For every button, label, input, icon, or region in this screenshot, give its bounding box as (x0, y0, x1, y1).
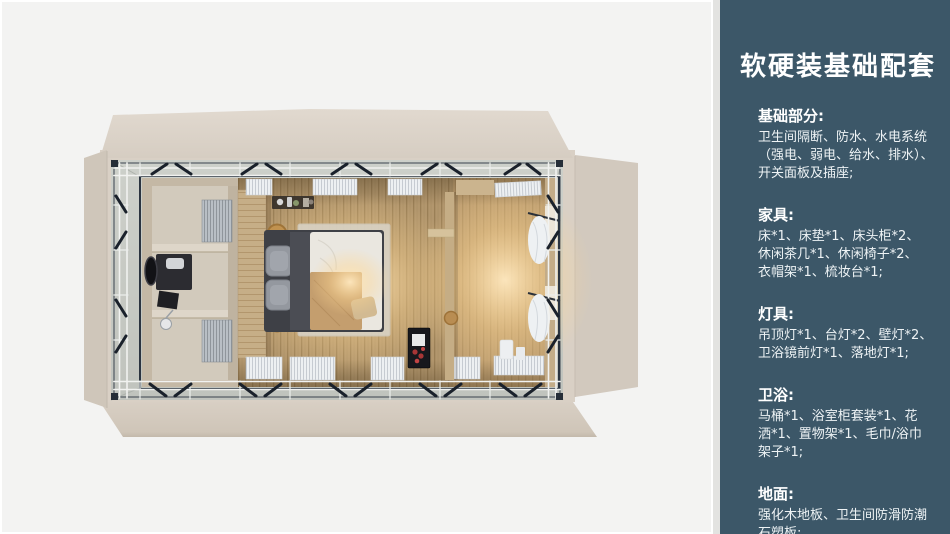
towel-rack (202, 320, 232, 362)
section-line: 吊顶灯*1、台灯*2、壁灯*2、 (758, 327, 936, 345)
shower-head (161, 319, 172, 330)
wall-shelf (272, 196, 314, 209)
section-heading: 地面: (758, 483, 936, 504)
section-line: 卫浴镜前灯*1、落地灯*1; (758, 345, 936, 363)
section-line: 休闲茶几*1、休闲椅子*2、 (758, 246, 936, 264)
section-line: 卫生间隔断、防水、水电系统 (758, 129, 936, 147)
bottom-wall-flap (100, 402, 597, 437)
section-line: 衣帽架*1、梳妆台*1; (758, 264, 936, 282)
mirror (145, 257, 157, 285)
wardrobe (456, 180, 494, 195)
floorplan-canvas (0, 0, 713, 534)
sink (166, 258, 184, 269)
top-wall-flap (100, 109, 573, 158)
section-heading: 家具: (758, 204, 936, 225)
section-bathroom: 卫浴: 马桶*1、浴室柜套装*1、花 洒*1、置物架*1、毛巾/浴巾 架子*1; (758, 384, 936, 462)
panel-title: 软硬装基础配套 (740, 46, 936, 83)
bed-area (264, 224, 390, 336)
section-line: 马桶*1、浴室柜套装*1、花 (758, 408, 936, 426)
section-line: 开关面板及插座; (758, 165, 936, 183)
section-heading: 基础部分: (758, 105, 936, 126)
section-line: 洒*1、置物架*1、毛巾/浴巾 (758, 426, 936, 444)
bathroom (142, 178, 238, 387)
section-heading: 卫浴: (758, 384, 936, 405)
stool (157, 291, 179, 310)
section-line: 石塑板; (758, 525, 936, 534)
section-basics: 基础部分: 卫生间隔断、防水、水电系统 （强电、弱电、给水、排水）、 开关面板及… (758, 105, 936, 183)
partition-wall (445, 192, 454, 380)
lamp-glow (310, 248, 390, 316)
slide: { "panel": { "title": "软硬装基础配套", "bg_col… (0, 0, 950, 534)
info-panel: 软硬装基础配套 基础部分: 卫生间隔断、防水、水电系统 （强电、弱电、给水、排水… (720, 0, 950, 534)
section-lighting: 灯具: 吊顶灯*1、台灯*2、壁灯*2、 卫浴镜前灯*1、落地灯*1; (758, 303, 936, 363)
section-line: 强化木地板、卫生间防滑防潮 (758, 507, 936, 525)
shelf (428, 229, 454, 237)
floorplan-render (0, 0, 713, 534)
section-line: （强电、弱电、给水、排水）、 (758, 147, 936, 165)
section-heading: 灯具: (758, 303, 936, 324)
basket (445, 312, 458, 325)
section-line: 床*1、床垫*1、床头柜*2、 (758, 228, 936, 246)
panel-divider (713, 0, 720, 534)
section-flooring: 地面: 强化木地板、卫生间防滑防潮 石塑板; (758, 483, 936, 534)
section-line: 架子*1; (758, 444, 936, 462)
plant (293, 200, 299, 206)
towel-rack (202, 200, 232, 242)
left-wall-flap (84, 150, 107, 408)
section-furniture: 家具: 床*1、床垫*1、床头柜*2、 休闲茶几*1、休闲椅子*2、 衣帽架*1… (758, 204, 936, 282)
